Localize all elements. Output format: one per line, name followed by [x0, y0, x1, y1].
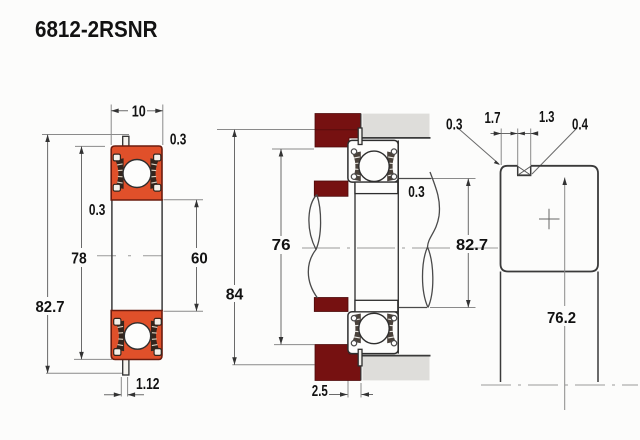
svg-text:60: 60 — [191, 251, 208, 268]
svg-text:78: 78 — [71, 251, 86, 268]
svg-text:1.7: 1.7 — [485, 110, 501, 127]
svg-text:1.3: 1.3 — [539, 109, 555, 126]
svg-text:84: 84 — [226, 287, 244, 304]
svg-text:0.4: 0.4 — [572, 117, 588, 134]
svg-text:0.3: 0.3 — [408, 184, 425, 201]
svg-text:0.3: 0.3 — [170, 132, 187, 149]
svg-text:0.3: 0.3 — [446, 117, 463, 134]
svg-text:1.12: 1.12 — [136, 376, 160, 393]
svg-text:76.2: 76.2 — [547, 310, 576, 327]
svg-text:2.5: 2.5 — [312, 383, 328, 400]
svg-text:82.7: 82.7 — [36, 299, 65, 316]
svg-text:6812-2RSNR: 6812-2RSNR — [35, 16, 158, 42]
svg-text:0.3: 0.3 — [89, 202, 106, 219]
svg-text:76: 76 — [272, 237, 291, 254]
svg-text:82.7: 82.7 — [456, 237, 488, 254]
svg-text:10: 10 — [132, 104, 146, 121]
